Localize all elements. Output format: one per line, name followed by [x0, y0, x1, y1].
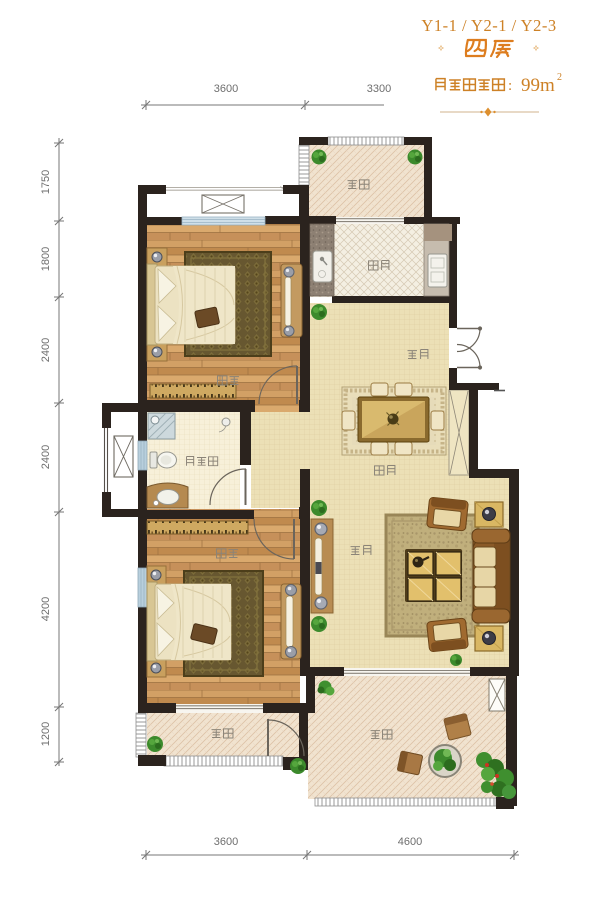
- svg-text:1800: 1800: [40, 247, 52, 271]
- svg-text:2: 2: [557, 72, 562, 83]
- svg-text:4600: 4600: [398, 836, 422, 848]
- svg-text:4200: 4200: [40, 597, 52, 621]
- svg-text::: :: [508, 78, 512, 94]
- svg-text:2400: 2400: [40, 338, 52, 362]
- svg-text:3600: 3600: [214, 836, 238, 848]
- svg-text:3600: 3600: [214, 83, 238, 95]
- svg-text:Y1-1 / Y2-1 / Y2-3: Y1-1 / Y2-1 / Y2-3: [421, 16, 556, 35]
- svg-text:2400: 2400: [40, 445, 52, 469]
- svg-text:1750: 1750: [40, 170, 52, 194]
- svg-text:99m: 99m: [521, 75, 555, 96]
- svg-text:3300: 3300: [367, 83, 391, 95]
- svg-text:1200: 1200: [40, 722, 52, 746]
